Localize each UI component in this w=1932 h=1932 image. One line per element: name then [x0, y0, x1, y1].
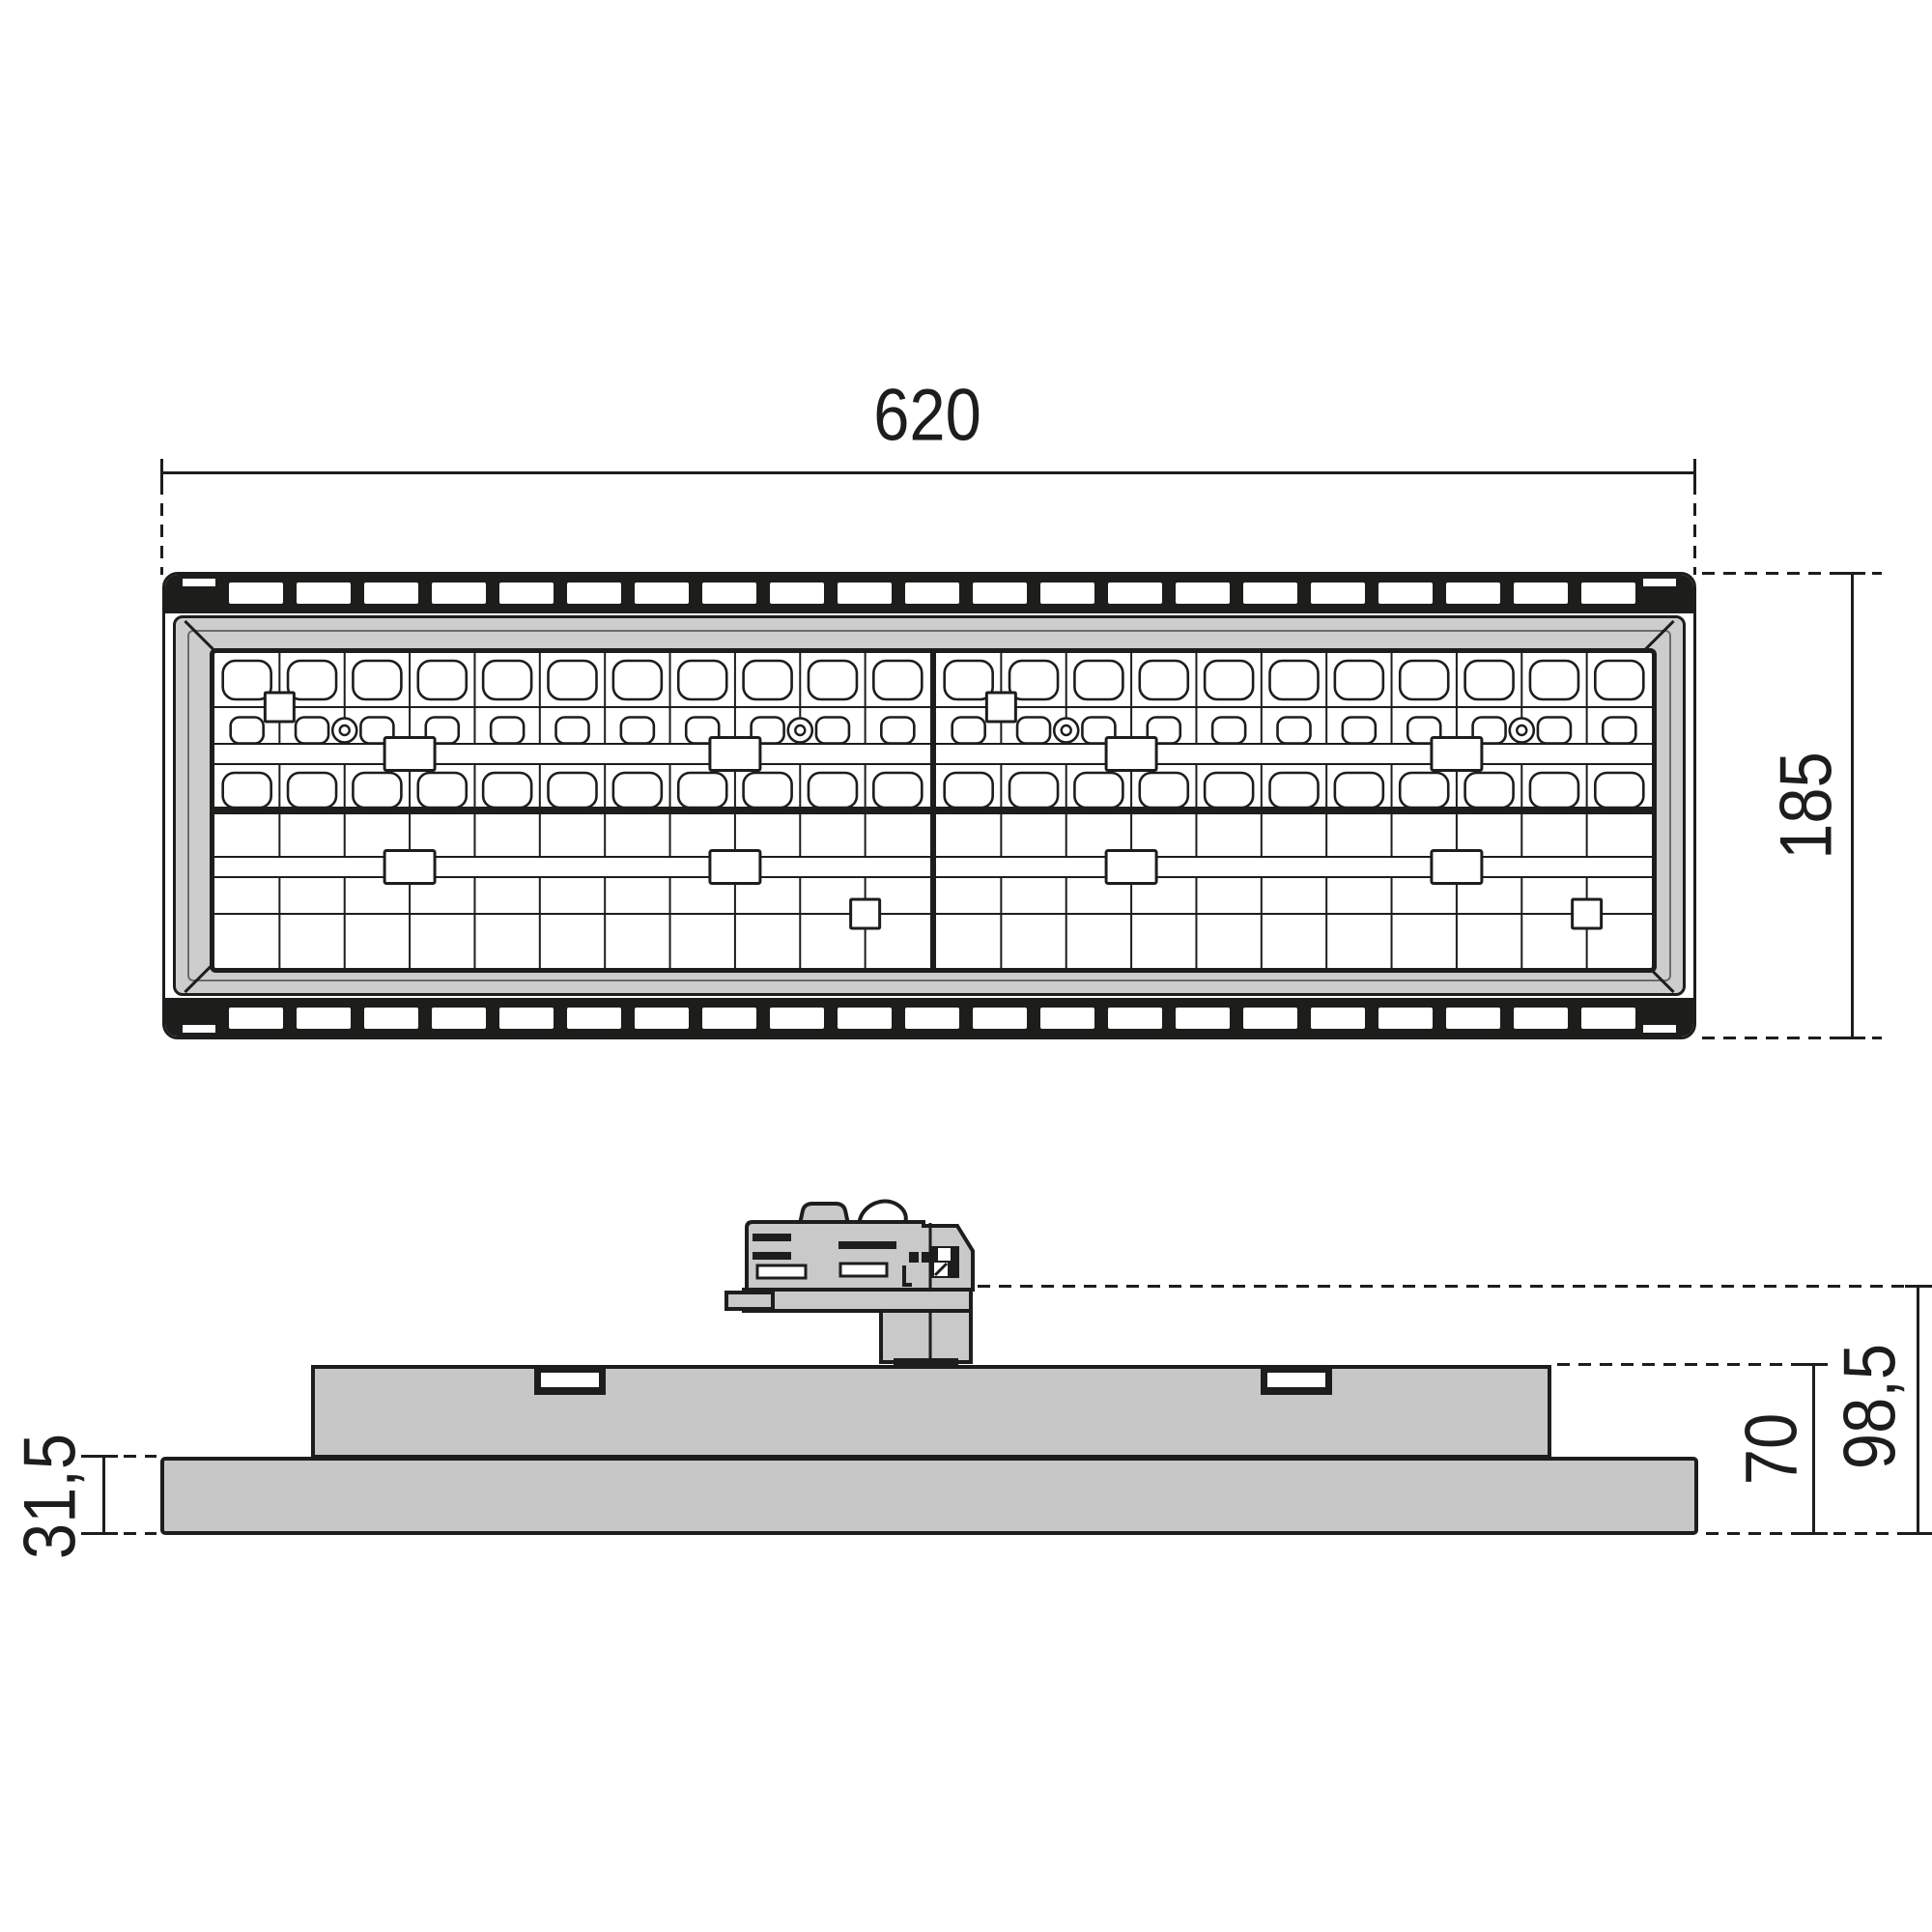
led-lens [1335, 773, 1383, 808]
total-height-label: 98,5 [1829, 1344, 1913, 1469]
heatsink-slot [1243, 1008, 1297, 1029]
adapter-base-plate [744, 1290, 971, 1311]
heatsink-slot [567, 1008, 621, 1029]
leader-line [1702, 572, 1882, 575]
leader-line [1557, 1363, 1832, 1366]
heatsink-slot [905, 1008, 959, 1029]
heatsink-slot [770, 1008, 824, 1029]
led-lens [816, 718, 849, 744]
heatsink-slot [432, 1008, 486, 1029]
screw-icon [1517, 725, 1526, 735]
led-lens [483, 661, 531, 699]
heatsink-slot [1108, 582, 1162, 604]
heatsink-slot [1311, 582, 1365, 604]
led-lens [491, 718, 524, 744]
extension-line-right [1693, 482, 1696, 575]
heatsink-slot [499, 582, 554, 604]
corner-tab [1643, 579, 1676, 586]
body-height-line [1812, 1365, 1815, 1534]
mounting-clip [534, 1369, 606, 1395]
heatsink-slot [702, 1008, 756, 1029]
heatsink-slot [1176, 582, 1230, 604]
led-lens [296, 718, 328, 744]
led-lens [1074, 661, 1122, 699]
heatsink-slot [973, 582, 1027, 604]
heatsink-slot [297, 582, 351, 604]
heatsink-slot [1040, 1008, 1094, 1029]
led-lens [231, 718, 264, 744]
driver-housing [311, 1365, 1551, 1459]
led-lens [613, 773, 662, 808]
depth-dimension-line [1851, 574, 1854, 1039]
led-lens [549, 661, 597, 699]
heatsink-slot [635, 582, 689, 604]
heatsink-slot [229, 1008, 283, 1029]
extension-line-left [160, 482, 163, 575]
heatsink-slot [1176, 1008, 1230, 1029]
heatsink-slot [364, 582, 418, 604]
depth-dimension-label: 185 [1765, 752, 1849, 860]
led-panel [210, 648, 1657, 973]
heatsink-slot [635, 1008, 689, 1029]
led-lens [1335, 661, 1383, 699]
base-height-line [102, 1457, 105, 1534]
led-lens [1595, 661, 1643, 699]
led-lens [1270, 773, 1319, 808]
led-lens [1140, 773, 1188, 808]
heatsink-slot [1581, 1008, 1635, 1029]
led-lens [1278, 718, 1311, 744]
leader-line [978, 1285, 1928, 1288]
heatsink-slot [567, 582, 621, 604]
adapter-side-tab [726, 1293, 773, 1309]
heatsink-slot [1040, 582, 1094, 604]
heatsink-slot [1243, 582, 1297, 604]
led-lens [678, 661, 726, 699]
heatsink-slot [1514, 582, 1568, 604]
led-lens [1205, 773, 1253, 808]
adapter-contact-slot [753, 1252, 791, 1260]
technical-drawing: 620 185 [0, 0, 1932, 1932]
led-lens [613, 661, 662, 699]
led-lens [1400, 661, 1448, 699]
heatsink-band-bottom [165, 998, 1693, 1037]
led-lens [353, 773, 401, 808]
led-lens [1530, 661, 1578, 699]
heatsink-slot [1108, 1008, 1162, 1029]
width-dimension-label: 620 [873, 374, 981, 458]
corner-tab [183, 1025, 215, 1033]
luminaire-head [160, 1457, 1698, 1535]
rail [214, 857, 930, 877]
rail-pad [1432, 851, 1482, 884]
led-lens [809, 773, 857, 808]
rail [214, 744, 930, 764]
screw-icon [1062, 725, 1071, 735]
led-lens [1595, 773, 1643, 808]
screw-icon [340, 725, 350, 735]
led-lens [1465, 773, 1514, 808]
led-lens [353, 661, 401, 699]
led-lens [483, 773, 531, 808]
clip-square [1573, 899, 1602, 928]
heatsink-slot [1378, 1008, 1433, 1029]
heatsink-slot [1378, 582, 1433, 604]
led-lens [881, 718, 914, 744]
led-lens [1343, 718, 1376, 744]
corner-tab [183, 579, 215, 586]
rail-pad [710, 851, 760, 884]
total-height-line [1917, 1287, 1919, 1534]
led-lens [1538, 718, 1571, 744]
led-lens [678, 773, 726, 808]
led-lens [945, 773, 993, 808]
heatsink-slot [432, 582, 486, 604]
rail-pad [1106, 851, 1156, 884]
led-lens [556, 718, 589, 744]
led-lens [873, 773, 922, 808]
rail-pad [1432, 738, 1482, 771]
heatsink-band-top [165, 575, 1693, 613]
heatsink-slot [905, 582, 959, 604]
leader-line [1702, 1037, 1882, 1039]
led-lens [952, 718, 985, 744]
heatsink-slot [838, 1008, 892, 1029]
heatsink-slot [702, 582, 756, 604]
mounting-clip [1261, 1369, 1332, 1395]
width-dimension-line [162, 471, 1696, 474]
heatsink-slot [1446, 1008, 1500, 1029]
led-lens [809, 661, 857, 699]
adapter-stem [881, 1311, 971, 1362]
adapter-contact-slot [757, 1265, 806, 1278]
led-lens [1017, 718, 1050, 744]
rail-pad [384, 738, 435, 771]
led-lens [1074, 773, 1122, 808]
led-lens [1212, 718, 1245, 744]
led-lens [1140, 661, 1188, 699]
corner-tab [1643, 1025, 1676, 1033]
led-lens [1270, 661, 1319, 699]
rail-pad [384, 851, 435, 884]
rail-pad [1106, 738, 1156, 771]
heatsink-slot [364, 1008, 418, 1029]
adapter-contact-slot [753, 1234, 791, 1241]
led-lens [549, 773, 597, 808]
led-lens [873, 661, 922, 699]
luminaire-housing [162, 572, 1696, 1039]
led-lens [1205, 661, 1253, 699]
rail [936, 857, 1652, 877]
heatsink-slot [1514, 1008, 1568, 1029]
rail [936, 744, 1652, 764]
adapter-contact-slot [838, 1241, 896, 1249]
clip-square [265, 693, 294, 722]
heatsink-slot [297, 1008, 351, 1029]
leader-line [1706, 1532, 1928, 1535]
rail-pad [710, 738, 760, 771]
clip-square [986, 693, 1015, 722]
clip-square [851, 899, 880, 928]
adapter-contact-slot [840, 1264, 887, 1276]
led-lens [418, 773, 467, 808]
led-lens [1530, 773, 1578, 808]
heatsink-slot [770, 582, 824, 604]
heatsink-slot [973, 1008, 1027, 1029]
leader-line [81, 1455, 156, 1458]
adapter-foot [894, 1358, 958, 1365]
base-height-label: 31,5 [9, 1434, 93, 1559]
led-lens [1400, 773, 1448, 808]
track-adapter [715, 1193, 995, 1372]
led-lens [223, 773, 271, 808]
led-lens [1009, 773, 1058, 808]
led-lens [288, 773, 336, 808]
leader-line [81, 1532, 156, 1535]
heatsink-slot [1446, 582, 1500, 604]
led-lens [621, 718, 654, 744]
heatsink-slot [499, 1008, 554, 1029]
heatsink-slot [1311, 1008, 1365, 1029]
screw-icon [795, 725, 805, 735]
led-lens [418, 661, 467, 699]
heatsink-slot [838, 582, 892, 604]
body-height-label: 70 [1730, 1413, 1814, 1485]
led-lens [744, 661, 792, 699]
led-lens [1465, 661, 1514, 699]
heatsink-slot [229, 582, 283, 604]
led-lens [1603, 718, 1635, 744]
heatsink-slot [1581, 582, 1635, 604]
led-lens [744, 773, 792, 808]
